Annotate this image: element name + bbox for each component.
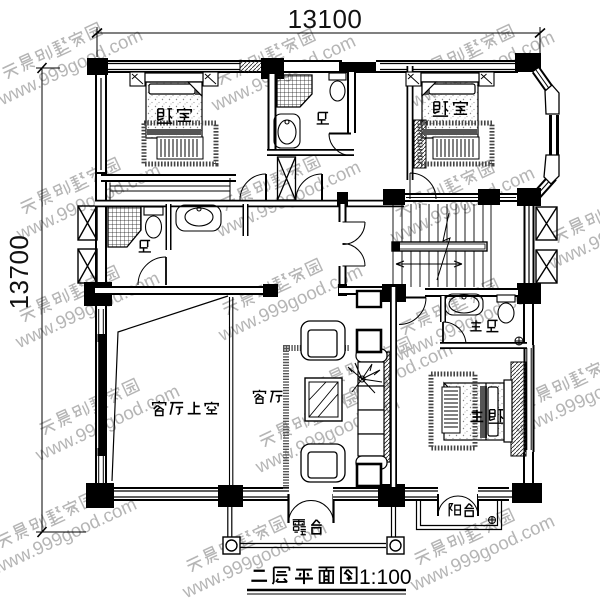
svg-text:13100: 13100 bbox=[288, 4, 363, 34]
svg-text:13700: 13700 bbox=[4, 235, 34, 310]
svg-text:1:100: 1:100 bbox=[359, 566, 412, 589]
